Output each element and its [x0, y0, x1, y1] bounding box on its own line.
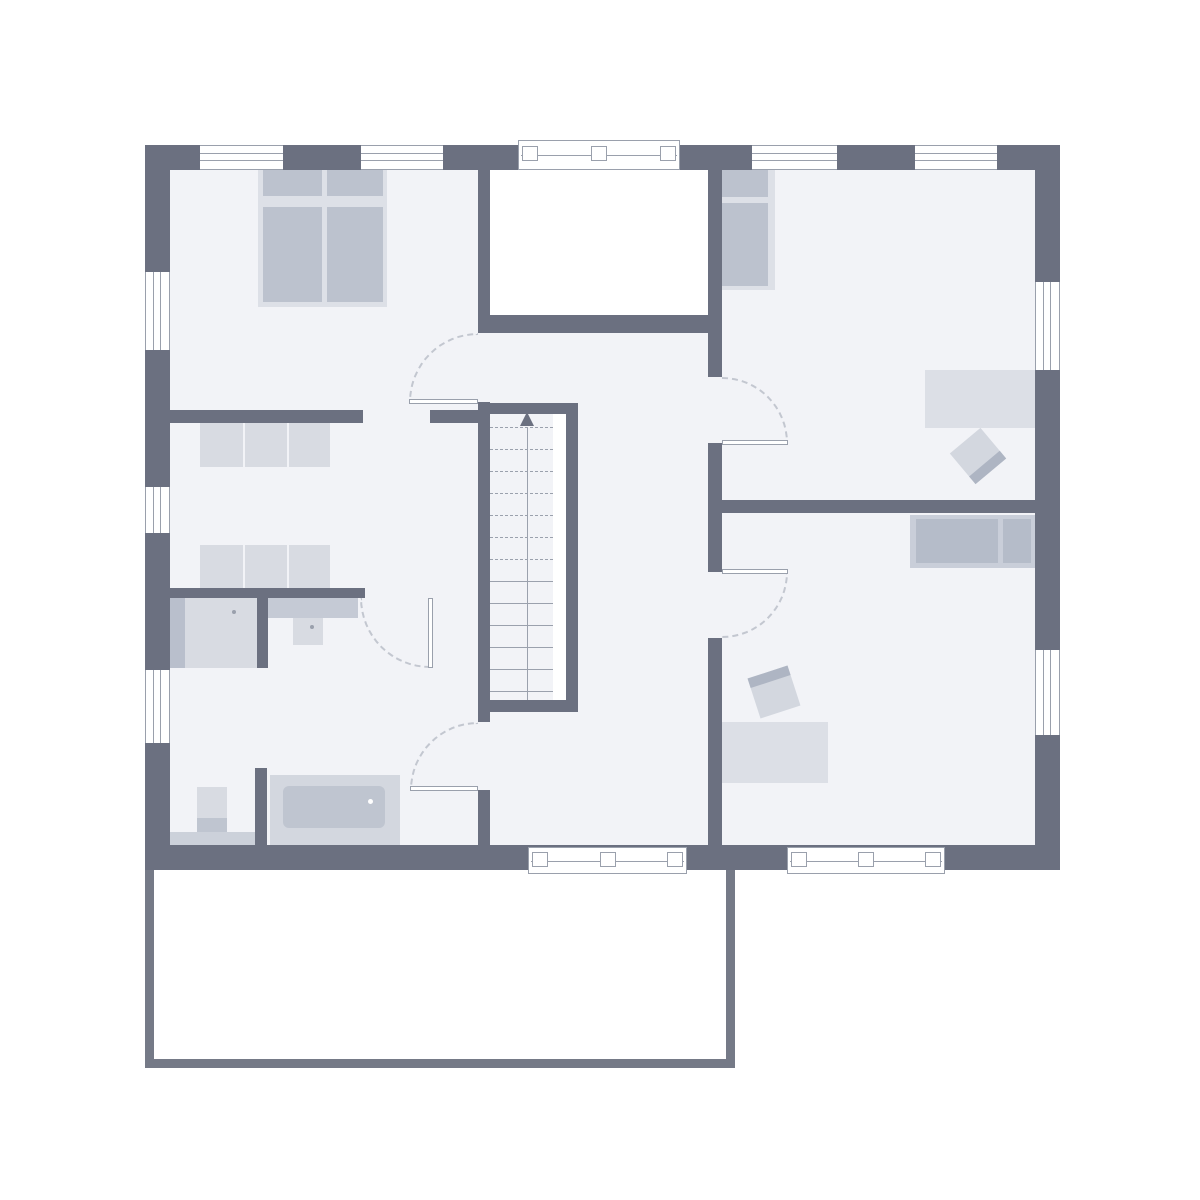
double-bed-pillow-right — [327, 169, 383, 196]
wall-shower-partition — [257, 588, 268, 668]
bathtub-inner — [283, 786, 385, 828]
stair-tread — [490, 427, 553, 428]
window-left-bathroom — [145, 670, 170, 743]
wall-children-divider — [722, 500, 1035, 513]
child1-bed-pillow — [722, 169, 768, 197]
wall-children-west-b — [708, 443, 722, 572]
void-open-space — [490, 170, 708, 315]
window-top-child1-1 — [752, 145, 837, 170]
balcony-edge-left — [145, 870, 154, 1068]
window-top-bedroom-1 — [200, 145, 283, 170]
child2-desk — [720, 722, 828, 783]
stair-top-wall — [490, 403, 578, 414]
double-bed-mattress-right — [327, 207, 383, 302]
wardrobe-divider — [243, 423, 245, 467]
child2-bed-mattress — [916, 519, 998, 563]
door-leaf-child1 — [722, 440, 788, 445]
window-left-bedroom — [145, 272, 170, 350]
child1-bed-mattress — [722, 203, 768, 286]
door-leaf-bedroom — [409, 399, 478, 404]
stair-walk-line — [527, 427, 528, 700]
stair-tread — [490, 625, 553, 626]
double-bed-mattress-left — [263, 207, 322, 302]
door-leaf-hall-bath — [410, 786, 478, 791]
stair-tread — [490, 647, 553, 648]
wall-dressing-top-right — [430, 410, 478, 423]
stair-tread — [490, 559, 553, 560]
stair-tread — [490, 581, 553, 582]
washbasin-dot — [310, 625, 314, 629]
room-balcony — [154, 870, 726, 1059]
stair-up-arrow-icon — [520, 412, 534, 426]
stair-tread — [490, 493, 553, 494]
window-mullion-icon — [925, 852, 941, 867]
bathtub-drain-dot — [368, 799, 373, 804]
toilet-tank — [197, 787, 227, 820]
window-top-bedroom-2 — [361, 145, 443, 170]
window-right-child1 — [1035, 282, 1060, 370]
window-mullion-icon — [667, 852, 683, 867]
washbasin — [293, 618, 323, 645]
wardrobe-divider — [287, 423, 289, 467]
window-right-child2 — [1035, 650, 1060, 735]
wall-stair-left — [478, 402, 490, 722]
wall-children-west-a — [708, 170, 722, 377]
window-top-child1-2 — [915, 145, 997, 170]
window-mullion-icon — [660, 146, 676, 161]
balcony-door-child2 — [787, 847, 945, 874]
door-leaf-dressing-bath — [428, 598, 433, 668]
wardrobe-divider — [287, 545, 289, 588]
shower-drain-dot — [232, 610, 236, 614]
wall-children-west-c — [708, 638, 722, 845]
window-mullion-icon — [522, 146, 538, 161]
wall-void-left-upper — [478, 170, 490, 315]
wall-dressing-top-left — [170, 410, 363, 423]
double-bed-pillow-left — [263, 169, 322, 196]
vanity-counter — [268, 598, 358, 618]
balcony-edge-bottom — [145, 1059, 735, 1068]
stair-bottom-wall — [490, 700, 578, 712]
wardrobe-row-1 — [200, 423, 330, 467]
window-mullion-icon — [532, 852, 548, 867]
wall-tub-partition — [255, 768, 267, 845]
stair-tread — [490, 669, 553, 670]
stair-tread — [490, 603, 553, 604]
balcony-edge-right — [726, 870, 735, 1068]
toilet-bowl — [197, 818, 227, 833]
stair-rail-wall — [566, 403, 578, 712]
child2-bed-pillow — [1003, 519, 1031, 563]
bath-lower-counter — [170, 832, 255, 845]
stair-tread — [490, 471, 553, 472]
child1-desk — [925, 370, 1035, 428]
stair-tread — [490, 537, 553, 538]
outer-wall-right — [1035, 145, 1060, 870]
wardrobe-divider — [243, 545, 245, 588]
window-mullion-icon — [858, 852, 874, 867]
door-leaf-child2 — [722, 569, 788, 574]
balcony-door-hall — [528, 847, 687, 874]
window-left-dressing — [145, 487, 170, 533]
floor-plan — [0, 0, 1200, 1200]
window-mullion-icon — [791, 852, 807, 867]
window-mullion-icon — [600, 852, 616, 867]
wall-below-bath-door — [478, 790, 490, 845]
window-top-void — [518, 140, 680, 170]
stair-side-gap — [553, 414, 566, 700]
stair-tread — [490, 691, 553, 692]
stair-tread — [490, 515, 553, 516]
wardrobe-row-2 — [200, 545, 330, 588]
stair-tread — [490, 449, 553, 450]
window-mullion-icon — [591, 146, 607, 161]
wall-void-bottom — [478, 315, 708, 333]
